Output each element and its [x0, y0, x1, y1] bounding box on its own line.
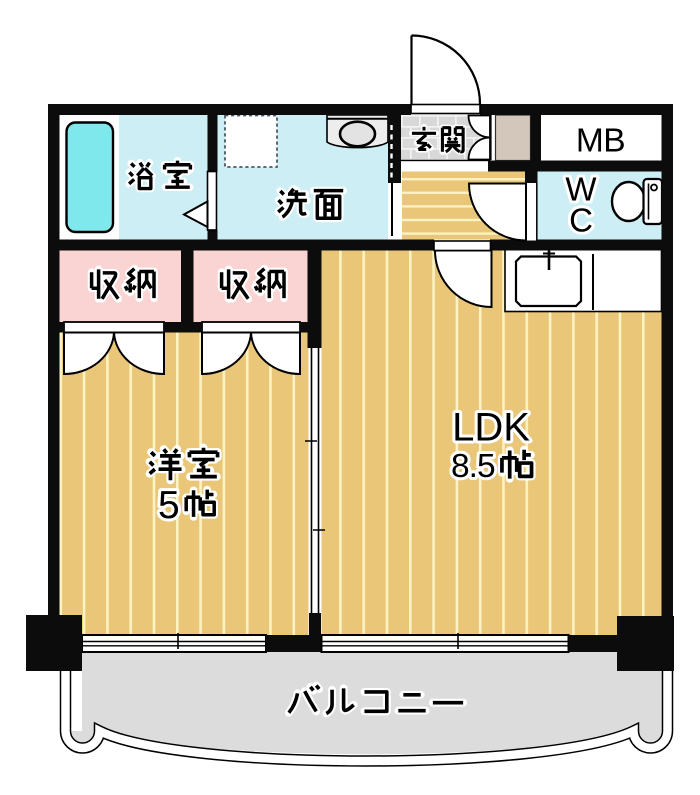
- svg-text:MB: MB: [576, 123, 625, 160]
- svg-text:C: C: [569, 202, 593, 239]
- svg-text:5: 5: [158, 484, 180, 527]
- svg-text:8.5: 8.5: [451, 448, 495, 485]
- svg-text:LDK: LDK: [452, 406, 530, 450]
